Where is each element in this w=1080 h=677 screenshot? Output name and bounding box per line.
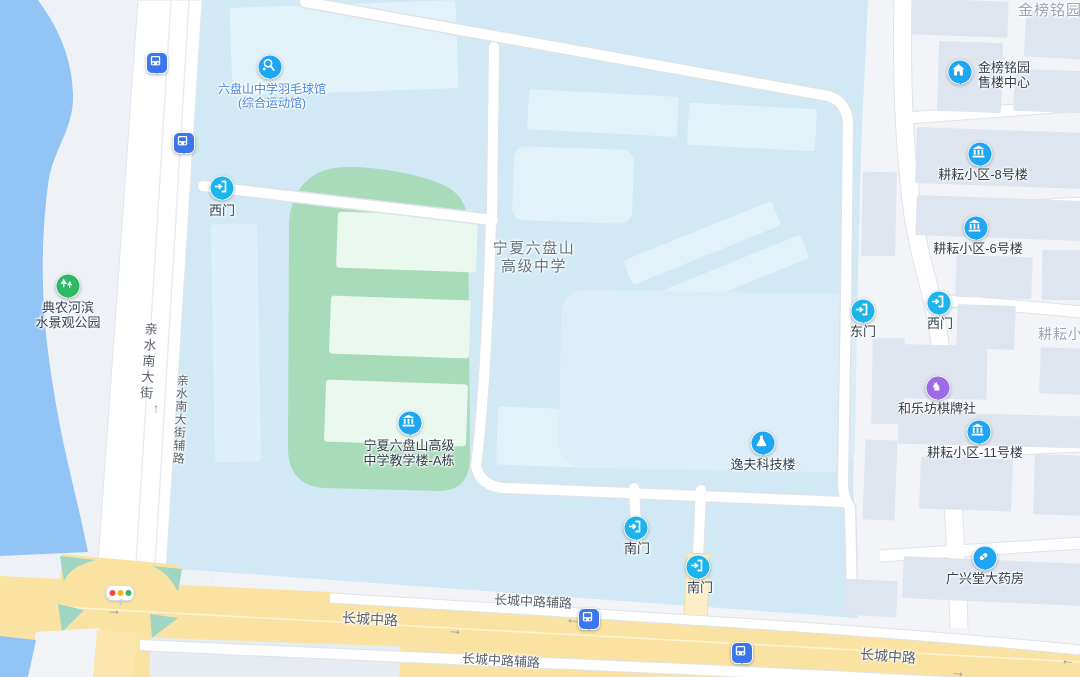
gate-pin-south-2[interactable]: [686, 555, 711, 580]
bldg8-pin[interactable]: [968, 142, 993, 167]
sales-center-pin[interactable]: [948, 60, 973, 85]
bldg11-pin[interactable]: [967, 420, 992, 445]
pharmacy-pin[interactable]: [973, 546, 998, 571]
map-canvas[interactable]: 亲水南大街 亲水南大街辅路 ↑ 长城中路辅路 长城中路 长城中路 长城中路辅路 …: [0, 0, 1080, 677]
bus-stop-pin[interactable]: [146, 52, 168, 74]
science-building-pin[interactable]: [751, 431, 776, 456]
south-road-stub: [93, 630, 137, 677]
poi-label-teaching-building[interactable]: 宁夏六盘山高级 中学教学楼-A栋: [363, 438, 454, 469]
poi-label-park[interactable]: 典农河滨 水景观公园: [35, 300, 100, 331]
poi-label-sales-center[interactable]: 金榜铭园 售楼中心: [978, 60, 1030, 91]
poi-label-badminton-hall[interactable]: 六盘山中学羽毛球馆 (综合运动馆): [218, 82, 326, 110]
gate-pin-west-community[interactable]: [927, 291, 952, 316]
area-label-jinbang: 金榜铭园: [1018, 2, 1080, 20]
gate-pin-south-1[interactable]: [624, 516, 649, 541]
bus-stop-pin[interactable]: [731, 642, 753, 664]
poi-label-line: 售楼中心: [978, 75, 1030, 90]
traffic-direction-icon: →: [950, 663, 966, 677]
riverbank-south: [28, 628, 100, 677]
poi-label-line: 金榜铭园: [978, 60, 1030, 75]
basemap-layer: [0, 0, 1080, 677]
chess-club-pin[interactable]: ♞: [926, 376, 951, 401]
area-label-gengyun: 耕耘小区: [1038, 326, 1080, 343]
bus-stop-pin[interactable]: [578, 608, 600, 630]
teaching-building-pin[interactable]: [398, 411, 423, 436]
traffic-light-icon: [106, 585, 135, 601]
gate-pin-west-campus[interactable]: [210, 176, 235, 201]
poi-label-line: 中学教学楼-A栋: [363, 453, 454, 468]
svg-text:♞: ♞: [931, 380, 942, 394]
gate-pin-east-campus[interactable]: [851, 299, 876, 324]
campus-name-line1: 宁夏六盘山: [493, 240, 576, 258]
traffic-direction-icon: ←: [1060, 651, 1076, 669]
north-arrow-icon: ↑: [153, 401, 160, 416]
campus-name-line2: 高级中学: [493, 258, 576, 276]
road-label-changcheng-1: 长城中路: [342, 610, 399, 629]
park-pin[interactable]: [56, 274, 81, 299]
bus-stop-pin[interactable]: [173, 132, 195, 154]
bldg6-pin[interactable]: [964, 216, 989, 241]
campus-name-label[interactable]: 宁夏六盘山 高级中学: [493, 240, 576, 275]
poi-label-line: 水景观公园: [35, 315, 100, 330]
badminton-hall-pin[interactable]: [258, 55, 283, 80]
poi-label-line: (综合运动馆): [218, 96, 326, 110]
traffic-direction-icon: →: [447, 621, 463, 639]
